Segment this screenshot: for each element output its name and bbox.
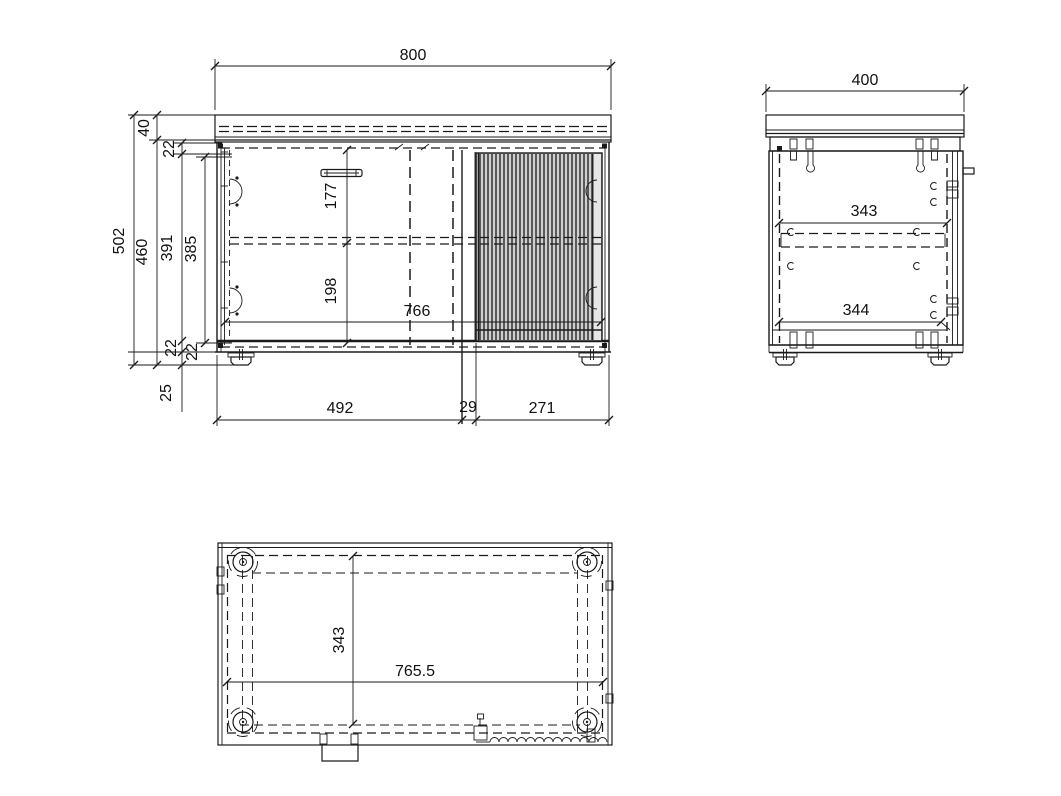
dim-22-top-label: 22 xyxy=(161,140,178,158)
side-shelf: 343 xyxy=(775,203,951,247)
bottom-details xyxy=(320,714,607,761)
bottom-view: 343 765.5 xyxy=(217,543,613,761)
side-carcass xyxy=(769,151,974,345)
dim-177-label: 177 xyxy=(323,183,340,210)
dim-492-label: 492 xyxy=(327,400,354,417)
side-top-panel xyxy=(766,115,964,151)
hinge-icon xyxy=(230,179,242,204)
dim-800-label: 800 xyxy=(400,47,427,64)
mounting-tab xyxy=(322,745,358,761)
side-handle xyxy=(963,168,974,174)
dim-460-label: 460 xyxy=(134,239,151,266)
bottom-outline xyxy=(217,543,613,745)
dim-766-label: 766 xyxy=(404,303,431,320)
bottom-width-dims: 492 29 271 xyxy=(213,343,613,426)
dim-344-label: 344 xyxy=(843,302,870,319)
keyhole-icon xyxy=(916,151,924,172)
bottom-dims: 343 765.5 xyxy=(223,552,607,728)
bottom-feet xyxy=(229,548,602,737)
scallop-edge xyxy=(490,738,607,743)
top-panel xyxy=(215,115,611,142)
dim-overall-width: 800 xyxy=(211,47,615,110)
dim-22-bottom-label: 22 xyxy=(163,339,180,357)
furniture-drawing: 800 xyxy=(0,0,1061,796)
divider-lines xyxy=(410,150,462,424)
door-handle xyxy=(321,170,362,177)
fluted-door xyxy=(475,152,602,342)
dim-198-label: 198 xyxy=(323,278,340,305)
dim-29-label: 29 xyxy=(459,399,477,416)
corner-bracket xyxy=(218,144,223,149)
dim-391-label: 391 xyxy=(159,235,176,262)
hinge-icon xyxy=(230,288,242,313)
left-door xyxy=(221,148,362,345)
dim-22-base-label: 22 xyxy=(184,343,201,361)
dim-271-label: 271 xyxy=(529,400,556,417)
technical-drawing-page: 800 xyxy=(0,0,1061,796)
keyhole-hangers xyxy=(791,151,938,172)
dim-400-label: 400 xyxy=(852,72,879,89)
dim-765-5-label: 765.5 xyxy=(395,663,435,680)
keyhole-icon xyxy=(807,151,815,172)
side-feet xyxy=(773,349,952,365)
dim-385-label: 385 xyxy=(183,236,200,263)
dim-343-bottom-label: 343 xyxy=(331,627,348,654)
dim-502-label: 502 xyxy=(111,228,128,255)
dim-depth: 400 xyxy=(762,72,968,112)
dim-25-label: 25 xyxy=(158,384,175,402)
corner-bracket xyxy=(602,144,607,149)
side-bottom: 344 xyxy=(769,302,963,353)
front-view: 800 xyxy=(111,47,615,426)
dim-343-side-label: 343 xyxy=(851,203,878,220)
dim-40-label: 40 xyxy=(136,119,153,137)
foot-icon xyxy=(229,708,258,737)
foot-icon xyxy=(229,548,258,577)
foot-icon xyxy=(573,548,602,577)
side-view: 400 xyxy=(762,72,974,365)
